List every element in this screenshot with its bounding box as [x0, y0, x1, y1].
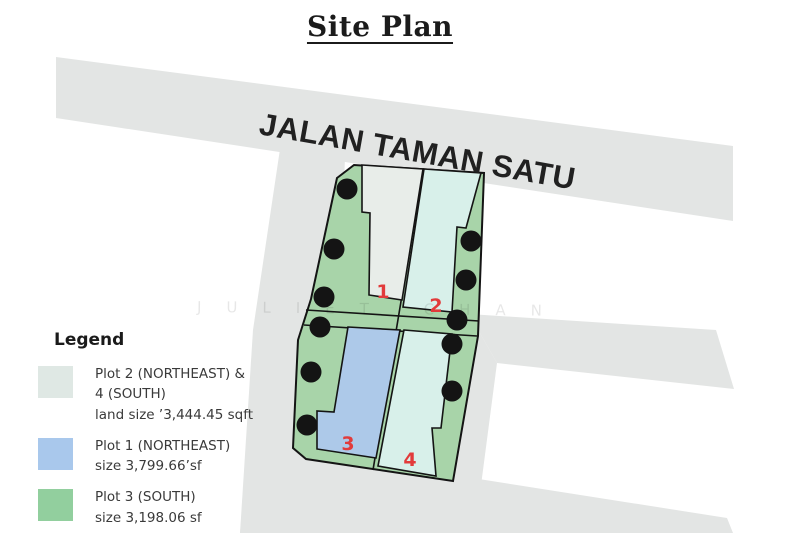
legend-label: 4 (SOUTH)	[95, 384, 253, 404]
site-plan-page: 1 2 3 4 JALAN TAMAN SATU JULIET CHAN Sit…	[0, 0, 800, 533]
tree-dot-icon	[442, 334, 463, 355]
legend-swatch-gray	[38, 366, 73, 398]
legend-panel: Legend Plot 2 (NORTHEAST) & 4 (SOUTH) la…	[38, 330, 268, 533]
plot-4-label: 4	[403, 449, 416, 471]
legend-size-label: size 3,799.66’sf	[95, 456, 230, 476]
legend-swatch-green	[38, 489, 73, 521]
legend-label: Plot 3 (SOUTH)	[95, 487, 202, 507]
tree-dot-icon	[297, 415, 318, 436]
tree-dot-icon	[310, 317, 331, 338]
tree-dot-icon	[456, 270, 477, 291]
legend-label: Plot 1 (NORTHEAST)	[95, 436, 230, 456]
plot-3-label: 3	[341, 433, 354, 455]
legend-size-label: land size ’3,444.45 sqft	[95, 405, 253, 425]
right-branch-road	[469, 314, 734, 389]
legend-item-plot-3: Plot 3 (SOUTH) size 3,198.06 sf	[38, 487, 268, 528]
tree-dot-icon	[324, 239, 345, 260]
legend-heading: Legend	[54, 330, 268, 350]
tree-dot-icon	[461, 231, 482, 252]
tree-dot-icon	[442, 381, 463, 402]
tree-dot-icon	[301, 362, 322, 383]
legend-item-plot-1: Plot 1 (NORTHEAST) size 3,799.66’sf	[38, 436, 268, 477]
page-title: Site Plan	[240, 10, 520, 43]
watermark-text: JULIET CHAN	[196, 298, 567, 320]
legend-label: Plot 2 (NORTHEAST) &	[95, 364, 253, 384]
legend-swatch-blue	[38, 438, 73, 470]
legend-item-plots-2-4: Plot 2 (NORTHEAST) & 4 (SOUTH) land size…	[38, 364, 268, 425]
legend-size-label: size 3,198.06 sf	[95, 508, 202, 528]
tree-dot-icon	[337, 179, 358, 200]
